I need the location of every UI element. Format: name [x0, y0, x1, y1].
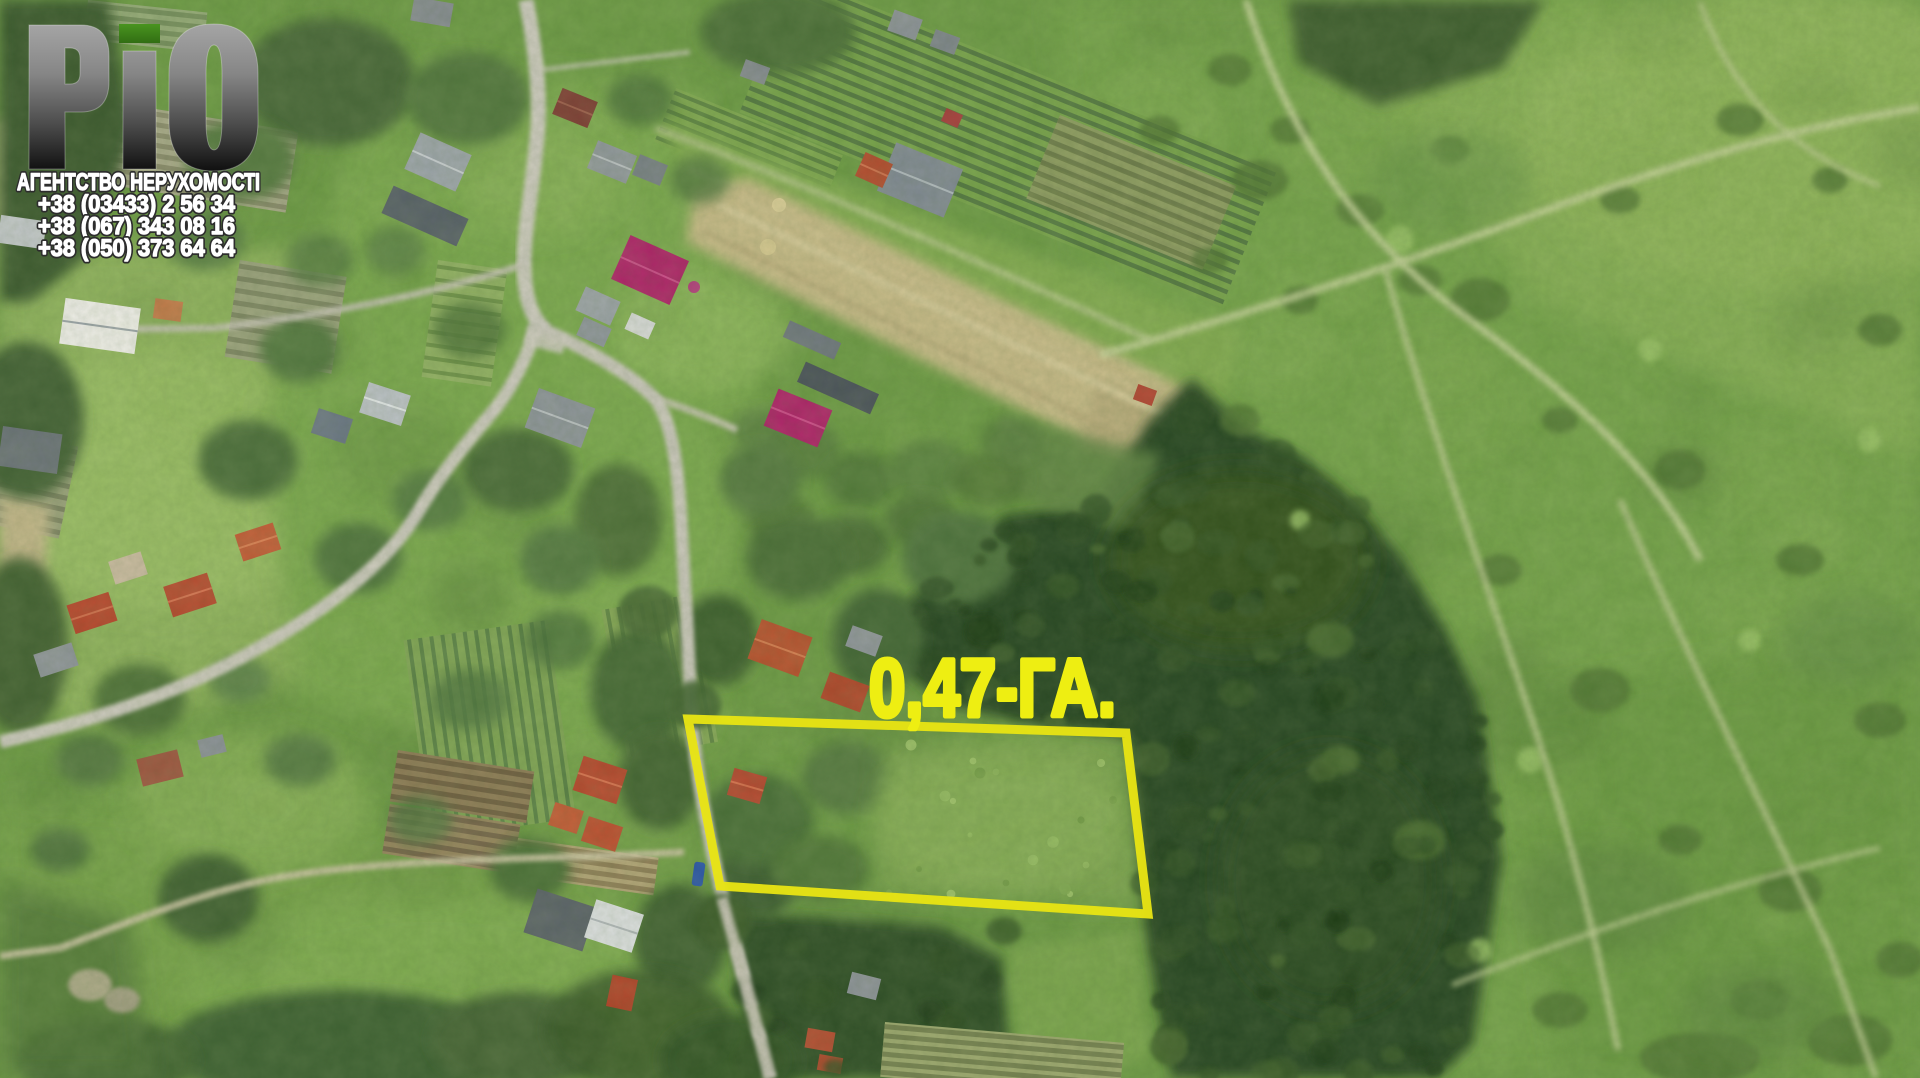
svg-text:+38 (050) 373 64 64: +38 (050) 373 64 64 — [38, 235, 236, 262]
svg-text:0,47-ГА.: 0,47-ГА. — [869, 643, 1116, 734]
